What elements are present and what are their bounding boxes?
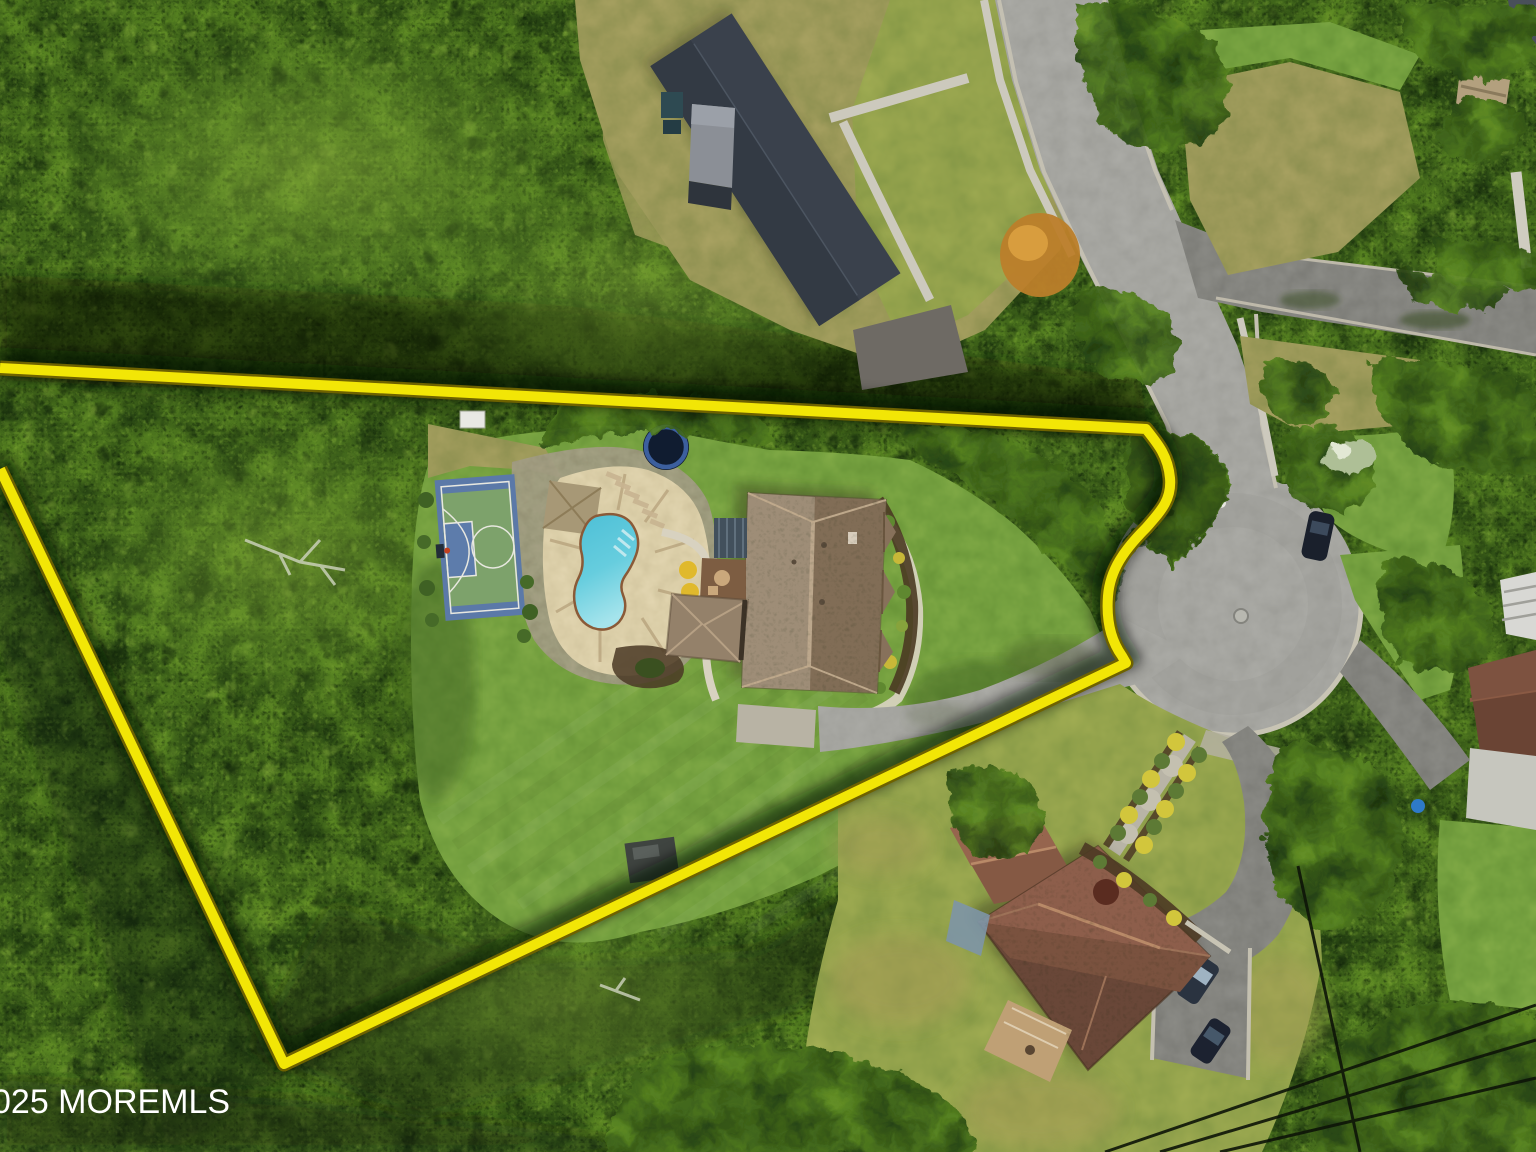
svg-text:025 MOREMLS: 025 MOREMLS [0, 1083, 230, 1121]
